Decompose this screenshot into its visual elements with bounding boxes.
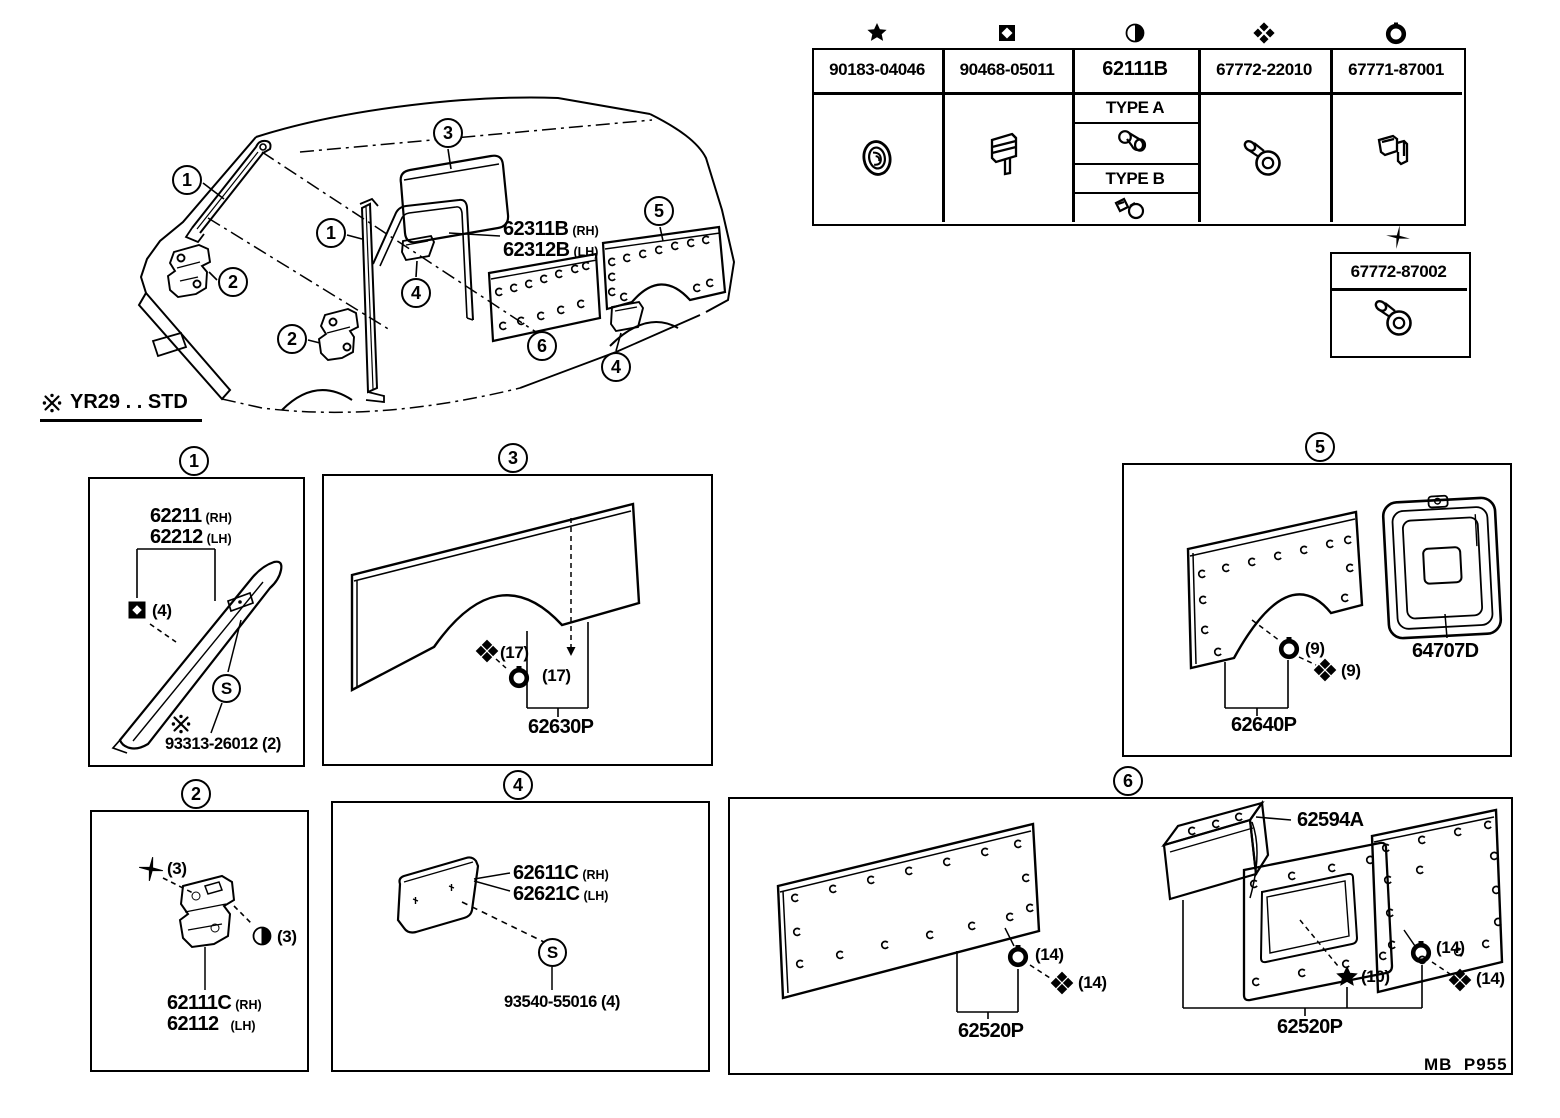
half-circle-icon xyxy=(1127,25,1144,42)
box6-right-part-label: 62520P xyxy=(1277,1016,1342,1039)
box5-ring-qty: (9) xyxy=(1305,639,1325,659)
table-part-number: 90468-05011 xyxy=(942,60,1072,80)
quarter-trim-panel-front-part xyxy=(489,254,600,341)
box1-number: 1 xyxy=(179,446,209,476)
quarter-window-panel-part xyxy=(401,156,508,243)
box1-standard-part-mark: S xyxy=(212,674,241,703)
page-code: MB P955 xyxy=(1424,1055,1508,1075)
box6-right-ring-qty: (14) xyxy=(1436,938,1465,958)
box6-right-screw-qty: (14) xyxy=(1476,969,1505,989)
box4-standard-part-mark: S xyxy=(538,938,567,967)
box4-part-label-rh: 62611C(RH) xyxy=(513,862,609,885)
square-diamond-icon xyxy=(999,25,1015,41)
box3-screw-qty: (17) xyxy=(500,643,529,663)
van-outline xyxy=(139,98,734,410)
box4-number: 4 xyxy=(503,770,533,800)
quarter-trim-panel-rear-part xyxy=(603,227,725,309)
box3-part-label: 62630P xyxy=(528,716,593,739)
box2-screw-qty: (3) xyxy=(167,859,187,879)
b-pillar-garnish-part xyxy=(360,199,384,402)
box5-screw-qty: (9) xyxy=(1341,661,1361,681)
callout-3: 3 xyxy=(433,118,463,148)
detail-box-4 xyxy=(331,801,710,1072)
callout-2: 2 xyxy=(218,267,248,297)
callout-6: 6 xyxy=(527,331,557,361)
box5-part-b-label: 64707D xyxy=(1412,640,1478,663)
detail-box-6 xyxy=(728,797,1513,1075)
table-part-number: 62111B xyxy=(1072,58,1198,81)
van-phantom-lines xyxy=(208,120,652,412)
box6-number: 6 xyxy=(1113,766,1143,796)
callout-1: 1 xyxy=(316,218,346,248)
a-pillar-garnish-part xyxy=(186,141,271,242)
cowl-side-trim-part xyxy=(168,245,210,297)
box5-part-label: 62640P xyxy=(1231,714,1296,737)
type-row-divider xyxy=(1072,122,1198,124)
detail-box-3 xyxy=(322,474,713,766)
box4-screw-ref: 93540-55016 (4) xyxy=(504,993,620,1012)
box6-left-ring-qty: (14) xyxy=(1035,945,1064,965)
table-part-number: 90183-04046 xyxy=(812,60,942,80)
box2-part-label-rh: 62111C(RH) xyxy=(167,992,262,1015)
reference-mark-icon xyxy=(42,393,62,413)
callout-2: 2 xyxy=(277,324,307,354)
box1-clip-qty: (4) xyxy=(152,601,172,621)
model-note-text: YR29 . . STD xyxy=(70,391,188,414)
type-a-label: TYPE A xyxy=(1072,94,1198,122)
ring-icon xyxy=(1388,23,1404,42)
callout-5: 5 xyxy=(644,196,674,226)
extra-box-divider xyxy=(1330,288,1467,291)
star-icon xyxy=(867,23,886,41)
type-b-label: TYPE B xyxy=(1072,165,1198,192)
box3-ring-qty: (17) xyxy=(542,666,571,686)
table-part-number: 67771-87001 xyxy=(1330,60,1462,80)
table-part-number: 67772-22010 xyxy=(1198,60,1330,80)
box1-screw-ref: 93313-26012 (2) xyxy=(165,735,281,754)
box2-part-label-lh: 62112(LH) xyxy=(167,1013,256,1036)
box2-number: 2 xyxy=(181,779,211,809)
callout-4: 4 xyxy=(601,352,631,382)
box6-star-qty: (10) xyxy=(1361,967,1390,987)
cowl-side-trim-part xyxy=(319,309,358,360)
main-part-label-rh: 62311B(RH) xyxy=(503,218,599,241)
type-row-divider xyxy=(1072,192,1198,194)
detail-box-5 xyxy=(1122,463,1512,757)
sparkle-icon xyxy=(1384,223,1411,250)
box3-number: 3 xyxy=(498,443,528,473)
main-part-label-lh: 62312B(LH) xyxy=(503,239,598,262)
box4-part-label-lh: 62621C(LH) xyxy=(513,883,608,906)
box2-clip-qty: (3) xyxy=(277,927,297,947)
quad-cross-icon xyxy=(1253,22,1274,43)
callout-1: 1 xyxy=(172,165,202,195)
box5-number: 5 xyxy=(1305,432,1335,462)
box1-part-label-lh: 62212(LH) xyxy=(150,526,232,549)
box6-top-part-label: 62594A xyxy=(1297,809,1363,832)
callout-4: 4 xyxy=(401,278,431,308)
box6-left-part-label: 62520P xyxy=(958,1020,1023,1043)
table-part-number: 67772-87002 xyxy=(1330,262,1467,282)
box1-part-label-rh: 62211(RH) xyxy=(150,505,232,528)
box6-left-screw-qty: (14) xyxy=(1078,973,1107,993)
model-note: YR29 . . STD xyxy=(40,391,202,422)
catalog-page: 90183-04046 90468-05011 62111B 67772-220… xyxy=(0,0,1560,1118)
